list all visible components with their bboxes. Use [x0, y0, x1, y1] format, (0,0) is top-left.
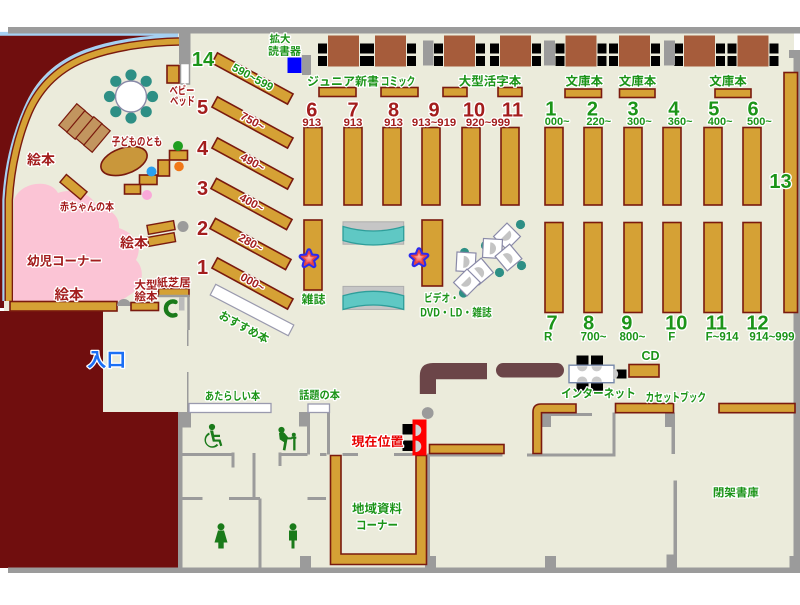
- svg-text:913~919: 913~919: [412, 117, 456, 129]
- svg-text:R: R: [544, 332, 553, 344]
- svg-text:3: 3: [197, 178, 208, 200]
- svg-text:300~: 300~: [627, 116, 652, 128]
- svg-text:000~: 000~: [545, 116, 570, 128]
- svg-text:5: 5: [197, 97, 208, 119]
- svg-text:14: 14: [192, 49, 215, 71]
- svg-text:CD: CD: [641, 349, 659, 363]
- svg-text:500~: 500~: [747, 116, 772, 128]
- svg-text:400~: 400~: [708, 116, 733, 128]
- svg-text:220~: 220~: [586, 116, 611, 128]
- svg-text:913: 913: [344, 117, 363, 129]
- svg-text:4: 4: [197, 138, 209, 160]
- svg-text:1: 1: [197, 257, 208, 279]
- svg-text:800~: 800~: [620, 332, 646, 344]
- svg-text:13: 13: [769, 171, 791, 193]
- svg-text:913: 913: [302, 117, 321, 129]
- svg-text:2: 2: [197, 218, 208, 240]
- svg-text:F~914: F~914: [706, 332, 740, 344]
- svg-text:914~999: 914~999: [749, 332, 794, 344]
- svg-text:913: 913: [384, 117, 403, 129]
- svg-text:11: 11: [502, 99, 523, 121]
- svg-text:700~: 700~: [581, 332, 607, 344]
- svg-text:360~: 360~: [668, 116, 693, 128]
- svg-text:F: F: [668, 332, 675, 344]
